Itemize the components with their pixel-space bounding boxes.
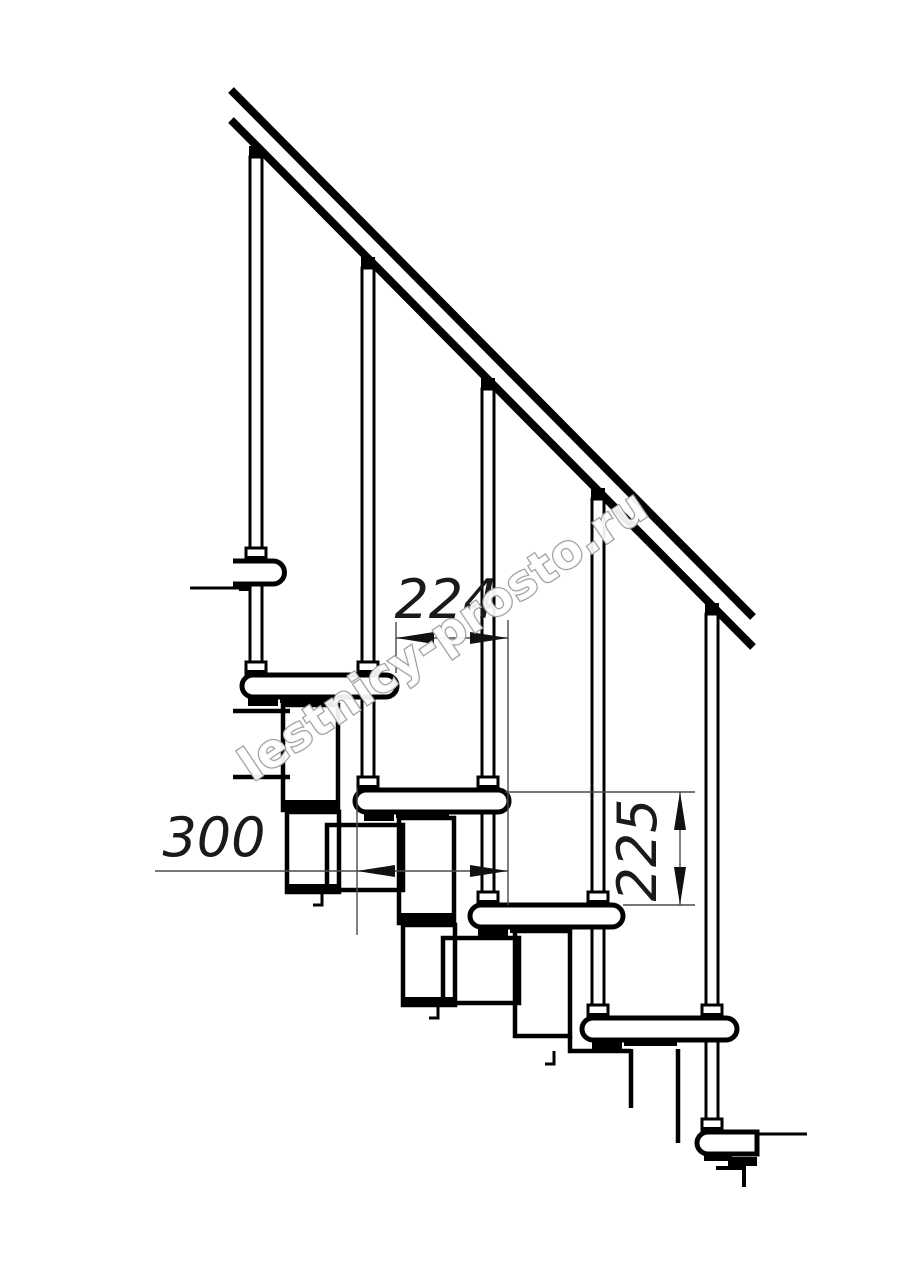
staircase-drawing: 224 300 225 lestnicy-prosto.ru [0,0,914,1280]
bracket-step-3 [478,926,565,936]
module-4 [631,1049,678,1143]
step-2 [355,790,509,812]
dimension-label-300: 300 [162,806,265,869]
step-5-break-line [716,1168,744,1187]
step-3 [470,905,623,927]
baluster-3 [482,389,494,907]
step-4 [582,1018,737,1040]
baluster-4 [592,499,604,1020]
step-5 [697,1132,757,1154]
baluster-5 [706,614,718,1134]
dimension-label-225: 225 [606,798,669,901]
step-upper-end-view [233,561,285,584]
bracket-step-4 [592,1039,677,1049]
staircase-drawing-page: 224 300 225 lestnicy-prosto.ru [0,0,914,1280]
baluster-1 [250,157,262,677]
steps [233,561,807,1154]
